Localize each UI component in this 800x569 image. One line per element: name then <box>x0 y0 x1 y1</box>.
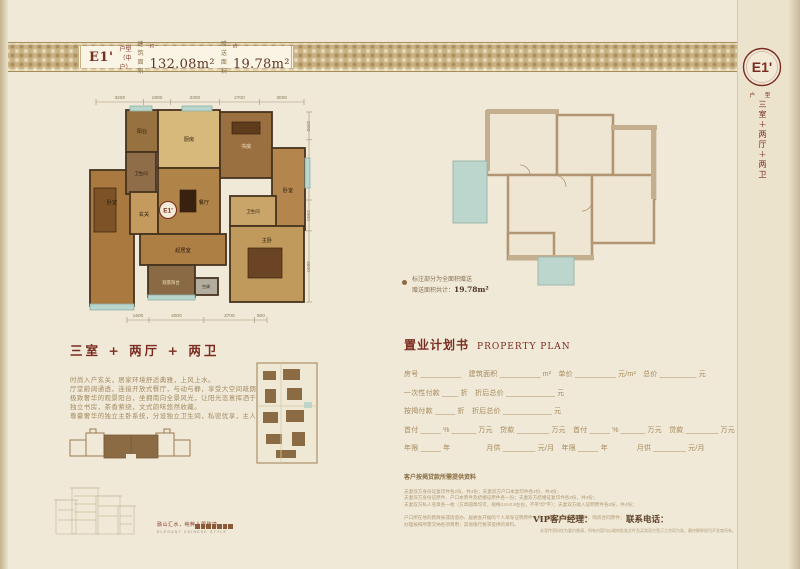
keyplan-notch <box>126 454 136 460</box>
room-label-study: 书房 <box>241 142 251 150</box>
room-label-balcony-south: 观景阳台 <box>162 279 180 286</box>
plan-badge-code: E1' <box>163 208 173 215</box>
build-area-label: 建筑面积 <box>137 39 143 75</box>
unit-code: E1' <box>89 50 113 65</box>
room-label-living: 起居室 <box>175 246 191 254</box>
left-edge-strip <box>0 0 8 569</box>
intro-section: 三室 + 两厅 + 两卫 时尚入户玄关，居家环境舒适典雅，上风上水。 厅堂蔚阔通… <box>70 340 370 421</box>
form-row-unit: 房号 __________ 建筑面积 __________ m² 单价 ____… <box>404 366 740 385</box>
property-plan-form: 房号 __________ 建筑面积 __________ m² 单价 ____… <box>404 366 740 459</box>
build-area-value: 约132.08m² <box>149 42 214 72</box>
dim-top-5: 3000 <box>276 95 287 101</box>
intro-heading: 三室 + 两厅 + 两卫 <box>70 340 370 359</box>
property-plan-title: 置业计划书 <box>404 336 469 353</box>
form-row-mortgage: 按揭付款 _____ 折 折后总价 ____________ 元 <box>404 403 740 422</box>
room-label-bedroom-left: 卧室 <box>107 198 117 206</box>
mortgage-docs-heading: 客户按揭贷款所需提供资料 <box>404 472 749 481</box>
property-plan-title-en: PROPERTY PLAN <box>477 342 571 352</box>
room-label-entry: 玄关 <box>139 210 149 218</box>
gift-note-line2: 赠送面积共计： <box>412 288 454 294</box>
gift-area-label: 赠送面积 <box>221 39 227 75</box>
unit-badge-seal: E1' <box>742 44 782 90</box>
approx-mark: 约 <box>233 45 238 50</box>
intro-line: 厅堂蔚阔通透，连接开放式餐厅，与动与静，享受大空间疏朗、惬意。 <box>70 385 370 394</box>
room-label-bedroom-right: 卧室 <box>283 186 293 194</box>
disclaimer-text: 本宣传资料仅为要约邀请，所有内容均以政府批准文件及买卖双方签订之合同为准，最终解… <box>540 528 750 534</box>
elevation-sketch <box>52 476 140 540</box>
dim-top-4: 2700 <box>234 95 245 101</box>
gift-note: 标注部分为全面积赠送 赠送面积共计：19.78m² <box>402 276 572 296</box>
form-row-downpayment: 首付 _____ % ______ 万元 贷款 ________ 万元 首付 _… <box>404 422 740 441</box>
dim-top-2: 1800 <box>152 95 163 101</box>
room-label-kitchen: 厨房 <box>184 135 194 143</box>
badge-caption: 户 型 <box>742 91 782 99</box>
dim-bottom-3: 3700 <box>224 313 235 319</box>
bullet-icon <box>402 280 407 285</box>
room-label-master: 主卧 <box>262 236 272 244</box>
dim-bottom-1: 1600 <box>133 313 144 319</box>
gift-area-value: 约19.78m² <box>233 42 290 72</box>
intro-line: 尊豪奢华的独立主卧系统，分设独立卫生间，私密优享，主人至尊人生。 <box>70 412 370 421</box>
gift-note-value: 19.78m² <box>454 285 489 294</box>
form-row-term: 年限 _____ 年 月供 ________ 元/月 年限 _____ 年 月供… <box>404 440 740 459</box>
layout-vertical-text: 三室＋两厅＋两卫 <box>755 100 769 180</box>
badge-code: E1' <box>752 59 772 75</box>
brand-seal-marks <box>195 524 233 529</box>
outline-walls <box>487 111 655 259</box>
room-label-dining: 餐厅 <box>199 198 209 206</box>
intro-line: 时尚入户玄关，居家环境舒适典雅，上风上水。 <box>70 376 370 385</box>
docs-line: 夫妻双方私人名章各一枚（方章圆章均可，规格0.8×0.8左右，不带“印”字）；夫… <box>404 502 749 508</box>
intro-line: 极致奢华的观景阳台，坐拥南向全景风光，让阳光恣意挥洒于生活每处。 <box>70 394 370 403</box>
dim-top-3: 3300 <box>189 95 200 101</box>
building-keyplan <box>68 424 196 464</box>
approx-mark: 约 <box>149 45 154 50</box>
contact-phone-label: 联系电话： <box>626 513 669 525</box>
floorplan-outline <box>450 105 665 295</box>
dim-right-1: 1800 <box>305 121 311 132</box>
form-row-lumpsum: 一次性付款 ____ 折 折后总价 ____________ 元 <box>404 385 740 404</box>
unit-type-label: 户型（中户） <box>119 44 131 71</box>
room-label-bath-left: 卫生间 <box>134 170 147 177</box>
siteplan-water <box>304 402 312 408</box>
intro-line: 独立书房，茶香萦绕，文式韵味悠然收藏。 <box>70 403 370 412</box>
siteplan-thumbnail <box>256 362 318 464</box>
dim-right-4: 4600 <box>305 261 311 272</box>
brand-slogan-en: ELEGANT CHINESE STYLE <box>157 530 277 534</box>
floorplan-rendered: 3200 1800 3300 2700 3000 1600 4000 3700 … <box>82 92 312 332</box>
dim-bottom-2: 4000 <box>171 313 182 319</box>
vip-manager-label: VIP客户经理： <box>533 513 592 525</box>
gift-note-line1: 标注部分为全面积赠送 <box>412 277 472 283</box>
mortgage-docs-list1: 夫妻双方身份证复印件各2份，共4份；夫妻双方户口本复印件各2份，共4份； 夫妻双… <box>404 489 749 508</box>
dim-top-1: 3200 <box>114 95 125 101</box>
room-label-bath-right: 卫生间 <box>246 208 259 215</box>
dim-bottom-4: 900 <box>257 313 265 319</box>
right-edge-shadow <box>788 0 800 569</box>
unit-header: E1' 户型（中户） 建筑面积 约132.08m² 赠送面积 约19.78m² <box>78 46 294 68</box>
room-label-ac: 空调 <box>202 283 210 289</box>
brochure-page: E1' 户型（中户） 建筑面积 约132.08m² 赠送面积 约19.78m² … <box>0 0 800 569</box>
intro-paragraph: 时尚入户玄关，居家环境舒适典雅，上风上水。 厅堂蔚阔通透，连接开放式餐厅，与动与… <box>70 376 370 421</box>
property-plan-section: 置业计划书 PROPERTY PLAN 房号 __________ 建筑面积 _… <box>404 336 740 459</box>
room-label-balcony-top: 阳台 <box>137 127 147 135</box>
